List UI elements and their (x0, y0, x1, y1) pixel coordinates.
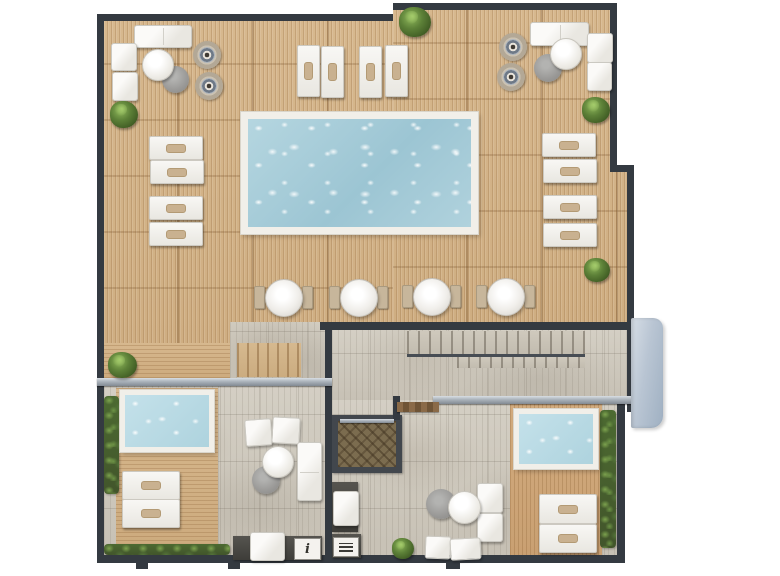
wall-post-south-3 (446, 563, 460, 569)
main-pool (241, 112, 478, 234)
side-seat (302, 286, 313, 309)
main-pool-water (248, 119, 471, 227)
plunge-pool-left (120, 390, 214, 452)
lounger-pillow (167, 168, 187, 177)
sun-lounger-west-2 (150, 160, 204, 184)
annex-block (631, 318, 663, 428)
potted-plant-east (584, 258, 610, 282)
armchair-top-left-2 (112, 72, 138, 101)
armchair-top-right-1 (587, 33, 613, 63)
ring-daybed-top-right-2 (497, 63, 525, 91)
exterior-mask-top-right (610, 0, 780, 168)
railing-corridor-south (433, 396, 633, 404)
wall-post-south-2 (228, 563, 240, 569)
grill-plaque (334, 538, 358, 556)
lounger-pillow (558, 534, 578, 543)
lounger-pillow (328, 63, 337, 81)
sun-lounger-west-3 (149, 196, 203, 220)
wall-east-mid (627, 165, 634, 328)
vestibule-lintel (340, 419, 394, 423)
wall-corridor-north (320, 322, 635, 330)
coffee-table-white-top-right (550, 38, 582, 70)
plunge-pool-right-water (519, 414, 593, 464)
wall-west (97, 14, 104, 563)
sun-lounger-west-1 (149, 136, 203, 160)
railing-suite-left-north (97, 378, 332, 386)
side-seat (254, 286, 265, 309)
hedge-suite-left-west (104, 396, 119, 494)
sofa-suite-left (297, 442, 322, 501)
lounger-pillow (560, 231, 580, 240)
sun-lounger-east-4 (543, 223, 597, 247)
floor-plan-canvas: i (0, 0, 780, 576)
hedge-suite-left-south (104, 544, 230, 555)
coffee-table-white-suite-left (262, 446, 294, 478)
sun-lounger-suite-right-2 (539, 524, 597, 553)
wall-suite-right-east (617, 400, 625, 557)
ring-daybed-top-left-2 (195, 72, 223, 100)
sofa-top-left (134, 25, 192, 48)
lounger-pillow (141, 481, 161, 490)
sun-lounger-suite-left-2 (122, 499, 180, 528)
lounger-pillow (558, 505, 578, 514)
lounger-pillow (304, 62, 313, 80)
lounger-pillow (366, 63, 375, 81)
sun-lounger-top-2 (321, 46, 344, 98)
side-seat (377, 286, 388, 309)
round-table-1 (265, 279, 303, 317)
lounger-pillow (166, 230, 186, 239)
sun-lounger-suite-right-1 (539, 494, 597, 524)
coffee-table-white-middle (448, 491, 481, 524)
wall-north-left (97, 14, 393, 21)
wall-south (97, 555, 625, 563)
floor-cushion-middle-2 (449, 537, 481, 561)
plunge-pool-right (514, 409, 598, 469)
armchair-suite-left-2 (271, 416, 300, 444)
ring-daybed-top-right-1 (499, 33, 527, 61)
sun-lounger-east-2 (543, 159, 597, 183)
info-plaque: i (295, 539, 320, 559)
staircase-upper-flight (407, 331, 585, 354)
potted-plant-top-middle (399, 7, 431, 37)
parquet-vestibule (332, 415, 402, 473)
armchair-top-right-2 (587, 62, 612, 91)
bench-seat-suite-left (250, 532, 285, 561)
sun-lounger-top-4 (385, 45, 408, 97)
potted-plant-steps (108, 352, 137, 378)
info-plaque-label: i (305, 543, 310, 556)
ring-daybed-top-left-1 (193, 41, 221, 69)
side-seat (450, 285, 461, 308)
lounger-pillow (560, 203, 580, 212)
plunge-pool-left-water (125, 395, 209, 447)
lounger-pillow (392, 62, 401, 80)
lounger-pillow (560, 167, 580, 176)
grill-icon (339, 543, 353, 552)
sun-lounger-suite-left-1 (122, 471, 180, 500)
round-table-3 (413, 278, 451, 316)
round-table-2 (340, 279, 378, 317)
armchair-suite-left-1 (244, 418, 273, 447)
sun-lounger-east-3 (543, 195, 597, 219)
round-table-4 (487, 278, 525, 316)
lounger-pillow (166, 204, 186, 213)
potted-plant-top-left (110, 101, 138, 128)
bench-seat-middle (333, 491, 359, 526)
sliding-door-corridor (397, 402, 439, 412)
wall-north-right (393, 3, 617, 10)
side-seat (524, 285, 535, 308)
lounger-pillow (166, 144, 186, 153)
wall-post-south-1 (136, 563, 148, 569)
lounger-pillow (141, 509, 161, 518)
armchair-middle-2 (477, 513, 503, 542)
side-seat (329, 286, 340, 309)
wall-divider-west-suites (325, 322, 332, 563)
sun-lounger-east-1 (542, 133, 596, 157)
armchair-top-left-1 (111, 43, 137, 71)
side-seat (402, 285, 413, 308)
lounger-pillow (559, 141, 579, 150)
sun-lounger-top-3 (359, 46, 382, 98)
potted-plant-top-right (582, 97, 610, 123)
coffee-table-white-top-left (142, 49, 174, 81)
passage-steps (237, 343, 301, 377)
hedge-suite-right-east (600, 410, 616, 548)
staircase-lower-flight (457, 357, 585, 368)
floor-cushion-middle-1 (425, 536, 452, 560)
sun-lounger-top-1 (297, 45, 320, 97)
sun-lounger-west-4 (149, 222, 203, 246)
potted-plant-middle-suite (392, 538, 414, 559)
side-seat (476, 285, 487, 308)
